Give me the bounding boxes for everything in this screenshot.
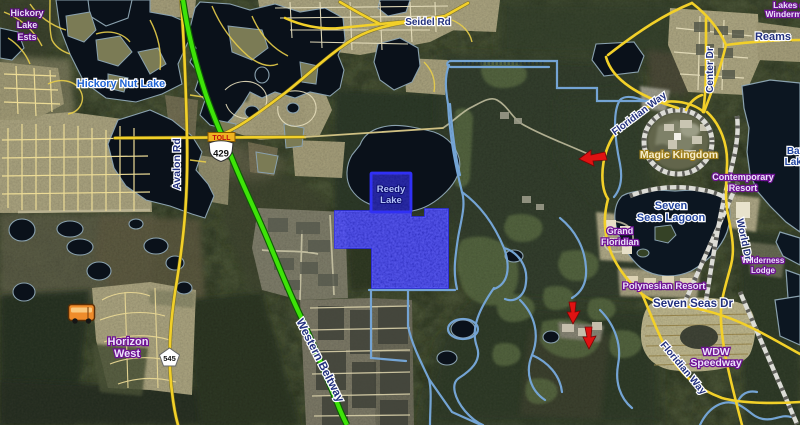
svg-text:Grand: Grand xyxy=(607,226,634,236)
svg-text:429: 429 xyxy=(213,149,229,160)
svg-text:Ests: Ests xyxy=(17,32,36,42)
svg-text:Avalon Rd: Avalon Rd xyxy=(171,138,183,190)
svg-text:Magic Kingdom: Magic Kingdom xyxy=(640,149,718,161)
svg-text:Lake: Lake xyxy=(785,157,800,168)
svg-text:Center Dr: Center Dr xyxy=(705,47,716,93)
svg-text:Horizon: Horizon xyxy=(108,336,149,348)
svg-text:Reedy: Reedy xyxy=(377,184,406,195)
svg-text:Seidel Rd: Seidel Rd xyxy=(405,17,451,28)
svg-text:Hickory: Hickory xyxy=(10,8,43,18)
svg-text:West: West xyxy=(114,348,140,360)
svg-text:Lodge: Lodge xyxy=(751,266,776,275)
svg-text:Bay: Bay xyxy=(787,146,800,157)
svg-text:Hickory Nut Lake: Hickory Nut Lake xyxy=(77,78,165,90)
svg-text:Polynesian Resort: Polynesian Resort xyxy=(623,281,707,292)
svg-text:545: 545 xyxy=(163,354,176,363)
svg-text:Speedway: Speedway xyxy=(690,357,742,369)
svg-text:Seven: Seven xyxy=(655,200,688,212)
svg-text:Reams: Reams xyxy=(755,31,791,43)
svg-text:Seven Seas Dr: Seven Seas Dr xyxy=(653,298,733,310)
svg-text:Lake: Lake xyxy=(17,20,38,30)
svg-text:Lake: Lake xyxy=(380,195,402,206)
svg-text:Seas Lagoon: Seas Lagoon xyxy=(637,212,706,224)
svg-text:Floridian: Floridian xyxy=(601,237,639,247)
svg-text:Resort: Resort xyxy=(729,183,758,193)
svg-text:Contemporary: Contemporary xyxy=(712,172,774,182)
svg-text:Winderme: Winderme xyxy=(765,9,800,19)
